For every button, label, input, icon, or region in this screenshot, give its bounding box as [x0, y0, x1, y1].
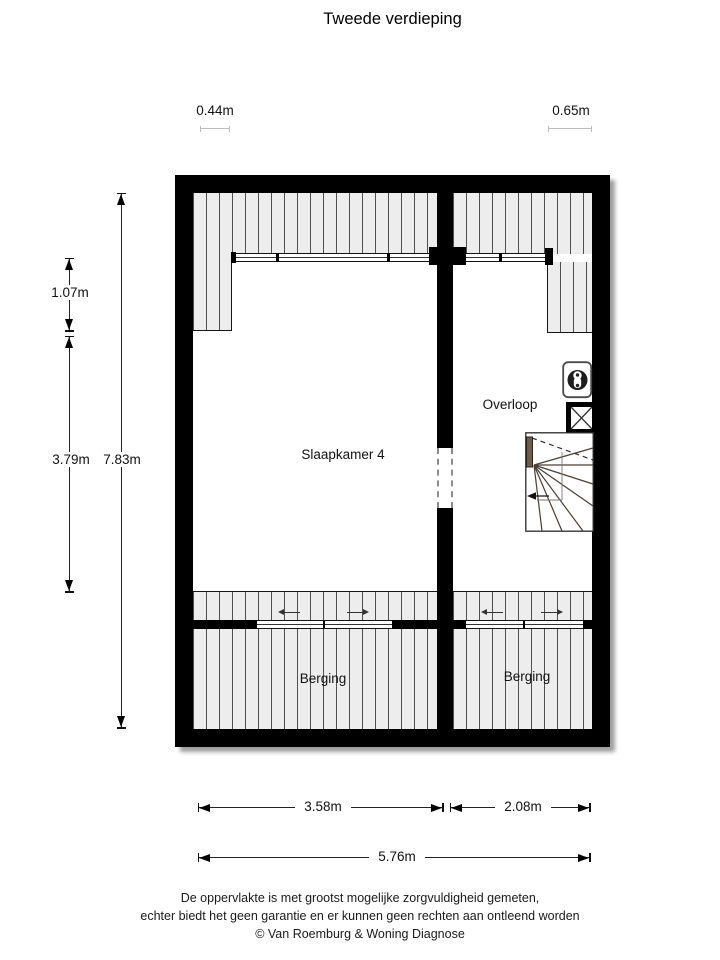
sliding-door-right — [466, 620, 583, 629]
window-bedroom — [231, 253, 430, 262]
dim-label-total-height: 7.83m — [96, 452, 148, 467]
hatch-edge-lower-left — [193, 591, 437, 593]
room-label-landing: Overloop — [460, 397, 560, 412]
window-landing-right-cap — [545, 248, 553, 265]
wall-segment-slide-left-b — [392, 620, 437, 629]
dim-line-top-left — [200, 128, 230, 129]
hatch-left-strip — [193, 254, 231, 331]
window-bedroom-left-cap — [231, 252, 236, 263]
dim-label-bottom-right: 2.08m — [495, 799, 551, 814]
dim-line-top-right — [548, 128, 592, 129]
boiler-icon — [562, 361, 593, 399]
slide-left-arrow-icon — [284, 612, 300, 613]
hatch-edge-left-vertical — [231, 254, 233, 331]
hatch-bedroom-lower — [193, 592, 437, 620]
slide-right-arrow-icon — [347, 612, 363, 613]
dim-label-upper: 1.07m — [44, 285, 96, 300]
wall-segment-slide-right-b — [583, 620, 592, 629]
dim-label-bottom-total: 5.76m — [369, 849, 425, 864]
room-label-storage-left: Berging — [283, 671, 363, 686]
door-opening — [437, 448, 453, 508]
window-bedroom-mullion-2 — [387, 253, 390, 262]
interior-wall-window-crossbar — [429, 247, 466, 265]
footer-copyright: © Van Roemburg & Woning Diagnose — [0, 927, 720, 941]
window-bedroom-mullion-1 — [276, 253, 279, 262]
dim-label-top-right: 0.65m — [536, 103, 606, 118]
hatch-landing-lower — [453, 592, 592, 620]
footer-disclaimer-line1: De oppervlakte is met grootst mogelijke … — [0, 891, 720, 905]
wall-segment-slide-right-a — [453, 620, 466, 629]
hatch-edge-right-vertical — [547, 262, 549, 333]
sliding-door-left — [257, 620, 392, 629]
sliding-door-left-tick — [323, 621, 325, 628]
page-title: Tweede verdieping — [175, 10, 610, 29]
slide-right-arrow-icon-2 — [541, 612, 557, 613]
dim-label-top-left: 0.44m — [180, 103, 250, 118]
hatch-edge-right-bottom — [547, 332, 592, 334]
staircase — [525, 432, 594, 532]
hatch-edge-lower-right — [453, 591, 592, 593]
room-label-bedroom: Slaapkamer 4 — [280, 447, 406, 462]
shaft-cross-icon — [566, 402, 597, 434]
dim-label-mid: 3.79m — [45, 452, 97, 467]
hatch-top-band — [193, 193, 592, 254]
window-landing — [466, 253, 545, 262]
room-label-storage-right: Berging — [487, 669, 567, 684]
hatch-edge-left-bottom — [193, 330, 232, 332]
sliding-door-right-tick — [523, 621, 525, 628]
floorplan-page: Tweede verdieping 0.44m 0.65m 1.07m 3.79… — [0, 0, 720, 960]
window-landing-mullion — [499, 253, 502, 262]
dim-label-bottom-left: 3.58m — [295, 799, 351, 814]
footer-disclaimer-line2: echter biedt het geen garantie en er kun… — [0, 909, 720, 923]
hatch-right-strip — [547, 262, 592, 333]
slide-left-arrow-icon-2 — [487, 612, 503, 613]
wall-segment-slide-left-a — [193, 620, 257, 629]
